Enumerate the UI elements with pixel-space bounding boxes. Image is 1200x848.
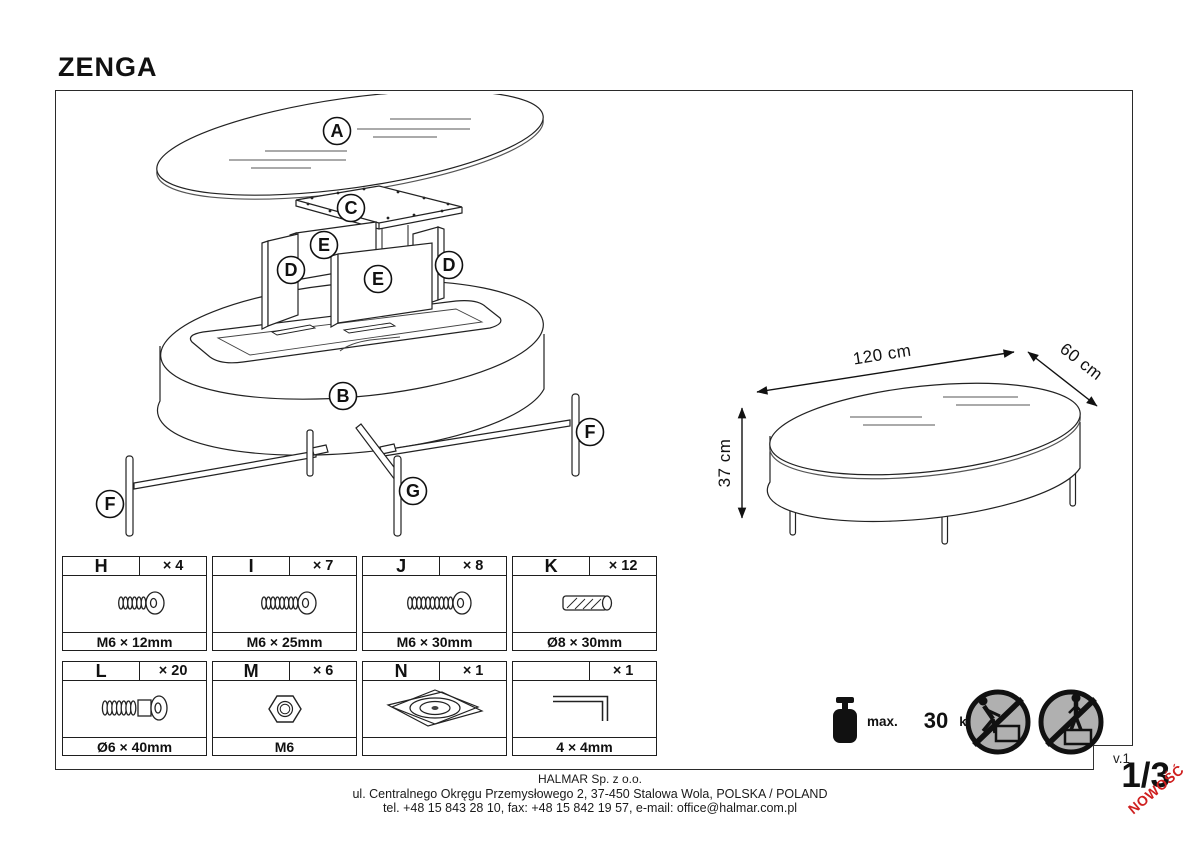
part-count: × 4: [140, 557, 206, 575]
part-size: Ø8 × 30mm: [513, 632, 656, 650]
length-dimension: 120 cm: [852, 341, 913, 369]
part-f-left-leg: [126, 445, 328, 536]
part-letter: K: [513, 557, 590, 575]
svg-text:G: G: [406, 481, 420, 501]
part-letter: L: [63, 662, 140, 680]
label-part-a: A: [324, 118, 351, 145]
dimension-diagram: 120 cm 60 cm 37 cm: [700, 330, 1140, 558]
manufacturer-footer: HALMAR Sp. z o.o. ul. Centralnego Okręgu…: [0, 772, 1180, 815]
hardware-cell-allen: × 1 4 × 4mm: [512, 661, 657, 756]
hardware-cell-n: N× 1: [362, 661, 507, 756]
depth-dimension: 60 cm: [1056, 339, 1106, 384]
label-part-d-left: D: [278, 257, 305, 284]
product-title: ZENGA: [58, 52, 158, 83]
label-part-f-left: F: [97, 491, 124, 518]
part-count: × 6: [290, 662, 356, 680]
part-size: 4 × 4mm: [513, 737, 656, 755]
svg-text:F: F: [585, 422, 596, 442]
part-letter: N: [363, 662, 440, 680]
part-size: Ø6 × 40mm: [63, 737, 206, 755]
hardware-row-2: L× 20 Ø6 × 40mm M× 6: [62, 661, 657, 756]
weight-icon: [830, 697, 860, 745]
wooden-dowel-icon: [513, 576, 656, 632]
svg-text:D: D: [443, 255, 456, 275]
hex-socket-bolt-short-icon: [63, 576, 206, 632]
hardware-cell-i: I× 7 M6 × 25mm: [212, 556, 357, 651]
part-count: × 12: [590, 557, 656, 575]
label-part-b: B: [330, 383, 357, 410]
part-size: [363, 737, 506, 755]
part-size: M6: [213, 737, 356, 755]
part-count: × 20: [140, 662, 206, 680]
svg-text:A: A: [331, 121, 344, 141]
part-letter: I: [213, 557, 290, 575]
allen-key-icon: [513, 681, 656, 737]
svg-text:D: D: [285, 260, 298, 280]
hardware-cell-k: K× 12 Ø8 × 30mm: [512, 556, 657, 651]
company-contact: tel. +48 15 843 28 10, fax: +48 15 842 1…: [0, 801, 1180, 815]
hardware-cell-h: H× 4 M6 × 12mm: [62, 556, 207, 651]
label-part-d-right: D: [436, 252, 463, 279]
part-letter: [513, 662, 590, 680]
part-size: M6 × 30mm: [363, 632, 506, 650]
label-part-e-front: E: [365, 266, 392, 293]
svg-text:E: E: [318, 235, 330, 255]
part-letter: J: [363, 557, 440, 575]
svg-text:B: B: [337, 386, 350, 406]
company-address: ul. Centralnego Okręgu Przemysłowego 2, …: [0, 787, 1180, 801]
hex-socket-bolt-long-icon: [363, 576, 506, 632]
hardware-cell-j: J× 8 M6 × 30mm: [362, 556, 507, 651]
max-weight-value: 30: [924, 708, 948, 734]
svg-text:C: C: [345, 198, 358, 218]
part-size: M6 × 12mm: [63, 632, 206, 650]
assembled-table-drawing: [765, 370, 1084, 544]
instruction-sheet: ZENGA: [0, 0, 1200, 848]
label-part-g: G: [400, 478, 427, 505]
hardware-row-1: H× 4 M6 × 12mm I× 7: [62, 556, 657, 651]
label-part-f-right: F: [577, 419, 604, 446]
svg-text:E: E: [372, 269, 384, 289]
part-letter: H: [63, 557, 140, 575]
exploded-view-diagram: A C E D D E B F F G: [58, 94, 698, 559]
load-limit: max. 30 kg: [830, 696, 974, 746]
part-count: × 1: [440, 662, 506, 680]
hex-socket-bolt-medium-icon: [213, 576, 356, 632]
part-size: M6 × 25mm: [213, 632, 356, 650]
max-label: max.: [867, 714, 898, 729]
company-name: HALMAR Sp. z o.o.: [0, 772, 1180, 786]
connector-screw-icon: [63, 681, 206, 737]
hex-nut-icon: [213, 681, 356, 737]
hardware-cell-m: M× 6 M6: [212, 661, 357, 756]
label-part-c: C: [338, 195, 365, 222]
height-dimension: 37 cm: [715, 439, 734, 488]
part-count: × 8: [440, 557, 506, 575]
part-letter: M: [213, 662, 290, 680]
hardware-table: H× 4 M6 × 12mm I× 7: [62, 556, 657, 766]
svg-text:F: F: [105, 494, 116, 514]
swivel-plate-icon: [363, 681, 506, 737]
hardware-cell-l: L× 20 Ø6 × 40mm: [62, 661, 207, 756]
no-leaning-on-table-icon: [962, 686, 1034, 758]
label-part-e-back: E: [311, 232, 338, 259]
part-count: × 1: [590, 662, 656, 680]
part-count: × 7: [290, 557, 356, 575]
